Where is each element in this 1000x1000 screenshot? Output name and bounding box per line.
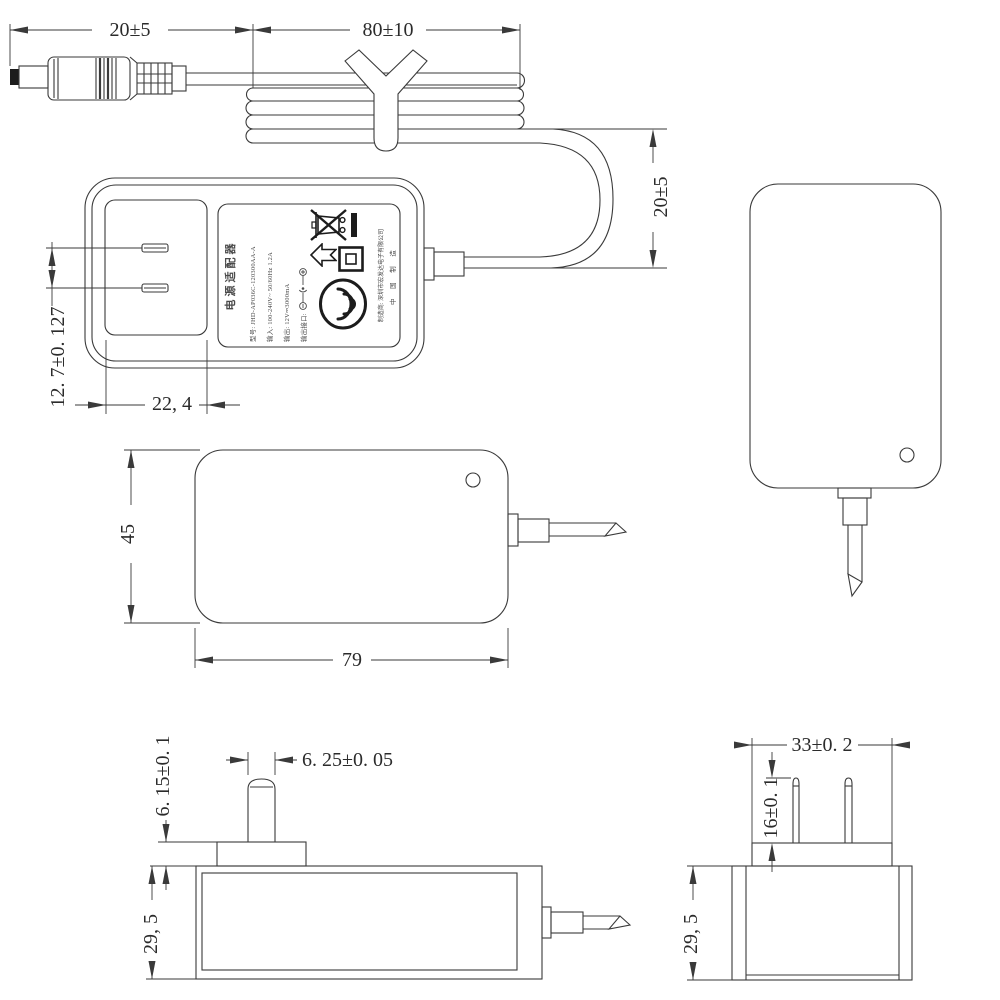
drawing-canvas: 20±5 80±10 bbox=[0, 0, 1000, 1000]
weee-crossed-bin-icon bbox=[309, 209, 349, 241]
dim-depth-end: 29, 5 bbox=[680, 914, 702, 954]
label-output: 输出: 12V⎓3000mA bbox=[281, 284, 292, 342]
adapter-face-view bbox=[750, 184, 941, 596]
cord-exit-bottom bbox=[838, 488, 871, 596]
dim-pin-spacing: 12. 7±0. 127 bbox=[47, 307, 69, 408]
weee-black-bar-icon bbox=[351, 213, 357, 237]
dimension-depth-end: 29, 5 bbox=[680, 866, 732, 980]
dim-body-height: 45 bbox=[117, 524, 139, 544]
dc-barrel-plug bbox=[10, 57, 186, 100]
plug-face-panel bbox=[105, 200, 207, 335]
label-product-name: 电源适配器 bbox=[222, 204, 238, 347]
dimension-pin-spacing: 12. 7±0. 127 bbox=[46, 242, 142, 407]
dim-blade-width: 6. 25±0. 05 bbox=[302, 749, 393, 771]
label-manufacturer: 制造商: 深圳市宏发达电子有限公司 bbox=[376, 204, 385, 347]
dim-loop-height: 20±5 bbox=[650, 177, 672, 218]
dimension-loop-height: 20±5 bbox=[650, 129, 673, 268]
end-body-outline bbox=[732, 866, 912, 980]
label-content: 电源适配器 型号: JHD-AP036C-120300AA-A 输入: 100-… bbox=[218, 204, 400, 347]
plug-blade-side bbox=[248, 779, 275, 842]
dim-depth-side: 29, 5 bbox=[140, 914, 162, 954]
side-body-outline bbox=[196, 866, 542, 979]
dimension-body-width: 79 bbox=[195, 628, 508, 671]
cord-exit-bushing bbox=[424, 248, 464, 280]
dimension-pedestal-height: 6. 15±0. 1 bbox=[150, 736, 217, 890]
plug-tip bbox=[10, 69, 19, 85]
dim-pedestal-width: 33±0. 2 bbox=[792, 734, 853, 756]
technical-drawing-sheet: 20±5 80±10 bbox=[0, 0, 1000, 1000]
dimension-blade-width: 6. 25±0. 05 bbox=[226, 749, 393, 775]
adapter-side-view: 6. 25±0. 05 6. 15±0. 1 29, 5 bbox=[140, 736, 630, 979]
ccc-certification-icon bbox=[318, 277, 368, 331]
adapter-front-outline bbox=[195, 450, 508, 623]
dim-bundle-length: 80±10 bbox=[363, 19, 414, 41]
plug-blade-left bbox=[793, 778, 799, 843]
dc-polarity-icon bbox=[298, 259, 308, 311]
dimension-face-width: 22, 4 bbox=[75, 340, 240, 415]
dim-pedestal-height: 6. 15±0. 1 bbox=[152, 736, 174, 817]
led-indicator-hole bbox=[466, 473, 480, 487]
product-label: 电源适配器 型号: JHD-AP036C-120300AA-A 输入: 100-… bbox=[218, 204, 400, 347]
dimension-plug-and-bundle: 20±5 80±10 bbox=[10, 19, 520, 90]
adapter-end-view: 33±0. 2 16±0. 1 29, 5 bbox=[680, 734, 912, 980]
plug-blade-right bbox=[845, 778, 852, 843]
adapter-front-view: 45 79 bbox=[117, 450, 626, 671]
dim-body-width: 79 bbox=[342, 649, 362, 671]
plug-pedestal-side bbox=[217, 842, 306, 866]
label-made-in: 中 国 制 造 bbox=[387, 204, 397, 347]
dimension-body-height: 45 bbox=[117, 450, 200, 623]
dim-plug-length: 20±5 bbox=[110, 19, 151, 41]
dim-face-width: 22, 4 bbox=[152, 393, 192, 415]
led-indicator-hole-2 bbox=[900, 448, 914, 462]
label-model: 型号: JHD-AP036C-120300AA-A bbox=[247, 246, 257, 342]
label-output-port: 输出接口: bbox=[298, 259, 308, 342]
plug-barrel bbox=[19, 66, 48, 88]
up-arrow-icon bbox=[310, 243, 337, 267]
dim-blade-length: 16±0. 1 bbox=[760, 778, 782, 839]
plug-blade-slots bbox=[142, 244, 168, 292]
label-input: 输入: 100-240V~ 50/60Hz 1.2A bbox=[264, 252, 274, 342]
adapter-face-outline bbox=[750, 184, 941, 488]
cord-exit-side bbox=[508, 514, 626, 546]
plug-body bbox=[48, 57, 130, 100]
strain-relief-ribs bbox=[137, 63, 186, 94]
cord-exit-side2 bbox=[542, 907, 630, 938]
dimension-blade-length: 16±0. 1 bbox=[760, 752, 791, 872]
class-ii-double-square-icon bbox=[338, 246, 364, 272]
label-output-port-text: 输出接口: bbox=[298, 313, 308, 342]
